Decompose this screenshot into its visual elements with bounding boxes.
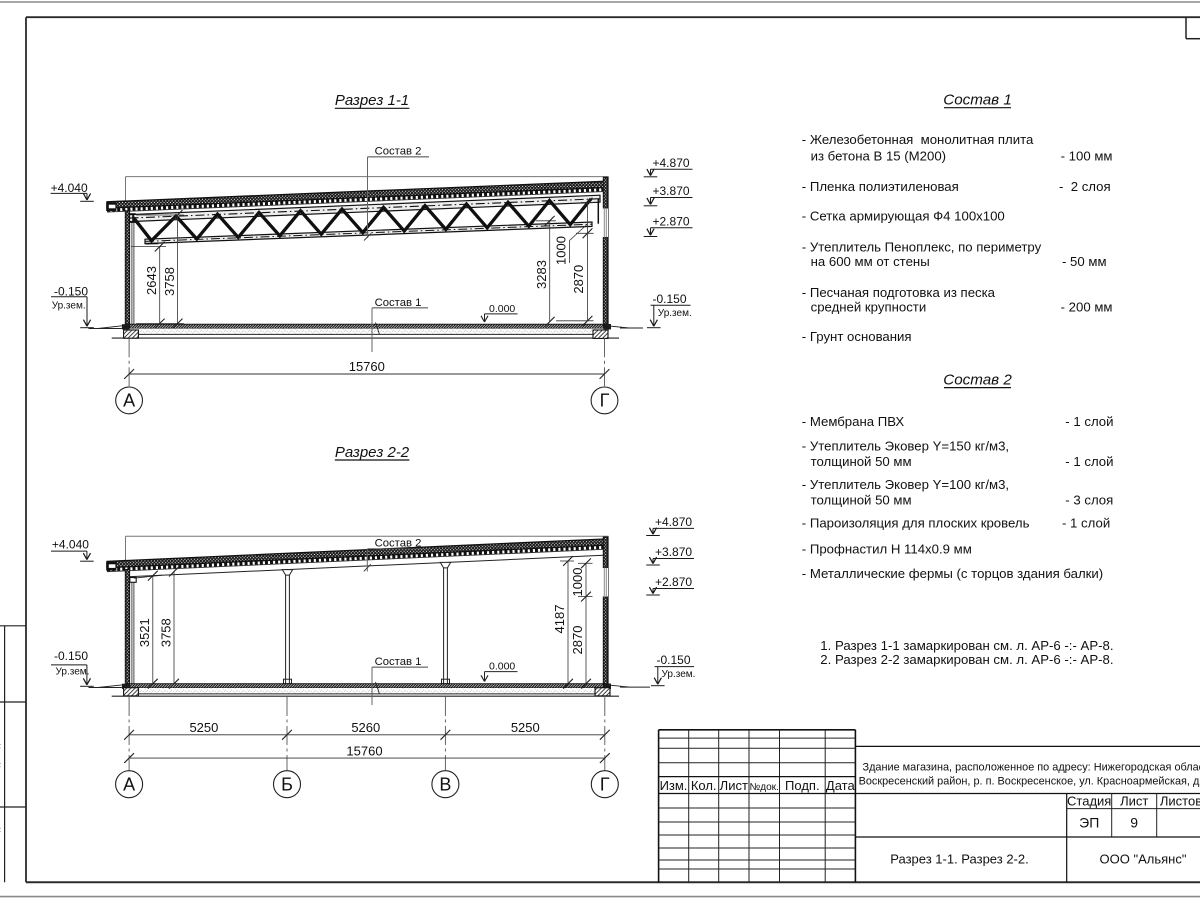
svg-text:Изм.: Изм. bbox=[660, 778, 688, 793]
svg-text:Состав 2: Состав 2 bbox=[943, 371, 1012, 388]
svg-text:15760: 15760 bbox=[346, 743, 382, 758]
svg-text:Воскресенский район, р. п. Вос: Воскресенский район, р. п. Воскресенское… bbox=[859, 775, 1200, 787]
svg-text:- Грунт основания: - Грунт основания bbox=[802, 329, 912, 344]
svg-text:0.000: 0.000 bbox=[489, 661, 515, 673]
svg-text:ЭП: ЭП bbox=[1079, 815, 1099, 831]
svg-text:средней крупности: средней крупности bbox=[811, 300, 927, 315]
svg-text:- 1 слой: - 1 слой bbox=[1062, 515, 1110, 530]
svg-text:Лист: Лист bbox=[720, 778, 748, 793]
svg-text:3758: 3758 bbox=[162, 267, 177, 296]
svg-text:А: А bbox=[123, 775, 135, 795]
svg-text:Стадия: Стадия bbox=[1067, 794, 1111, 809]
svg-text:Состав 1: Состав 1 bbox=[943, 92, 1012, 109]
svg-text:на 600 мм от стены: на 600 мм от стены bbox=[811, 254, 930, 269]
svg-text:- 200 мм: - 200 мм bbox=[1061, 300, 1113, 315]
svg-text:- Пленка полиэтиленовая: - Пленка полиэтиленовая bbox=[802, 179, 959, 194]
svg-text:Ур.зем.: Ур.зем. bbox=[662, 669, 696, 680]
svg-text:1000: 1000 bbox=[570, 568, 585, 597]
svg-text:- 1 слой: - 1 слой bbox=[1065, 414, 1113, 429]
svg-text:+3.870: +3.870 bbox=[653, 184, 690, 198]
svg-text:из бетона В 15 (М200): из бетона В 15 (М200) bbox=[811, 149, 946, 164]
svg-text:-0.150: -0.150 bbox=[54, 649, 88, 663]
svg-text:5250: 5250 bbox=[511, 720, 540, 735]
svg-text:№док.: №док. bbox=[750, 782, 779, 793]
svg-text:5250: 5250 bbox=[189, 720, 218, 735]
svg-text:Г: Г bbox=[600, 775, 610, 795]
svg-text:- Железобетонная монолитная п: - Железобетонная монолитная плита bbox=[802, 132, 1034, 147]
svg-text:толщиной 50 мм: толщиной 50 мм bbox=[811, 493, 912, 508]
svg-text:толщиной 50 мм: толщиной 50 мм bbox=[811, 454, 912, 469]
svg-text:- Мембрана ПВХ: - Мембрана ПВХ bbox=[802, 414, 905, 429]
svg-text:- Сетка армирующая Ф4 100х100: - Сетка армирующая Ф4 100х100 bbox=[802, 208, 1005, 223]
svg-text:- Пароизоляция для плоских кро: - Пароизоляция для плоских кровель bbox=[802, 515, 1030, 530]
svg-text:15760: 15760 bbox=[349, 359, 385, 374]
svg-text:- Утеплитель Эковер Y=150 кг/м: - Утеплитель Эковер Y=150 кг/м3, bbox=[802, 438, 1009, 453]
svg-text:В: В bbox=[439, 775, 451, 795]
svg-text:-0.150: -0.150 bbox=[653, 292, 687, 306]
svg-text:- 1 слой: - 1 слой bbox=[1065, 454, 1113, 469]
svg-text:2643: 2643 bbox=[144, 266, 159, 295]
svg-text:Ур.зем.: Ур.зем. bbox=[658, 308, 692, 319]
svg-text:Разрез 2-2: Разрез 2-2 bbox=[335, 444, 410, 461]
svg-text:- 100 мм: - 100 мм bbox=[1061, 149, 1113, 164]
svg-text:Лист: Лист bbox=[1120, 794, 1148, 809]
svg-text:Состав 1: Состав 1 bbox=[375, 297, 422, 309]
svg-text:3283: 3283 bbox=[534, 260, 549, 289]
svg-text:Разрез 1-1: Разрез 1-1 bbox=[335, 92, 409, 109]
svg-text:+4.040: +4.040 bbox=[52, 537, 89, 551]
svg-text:Инв. № подл.: Инв. № подл. bbox=[0, 821, 1, 868]
svg-text:9: 9 bbox=[1130, 815, 1138, 831]
svg-text:Состав 1: Состав 1 bbox=[375, 656, 422, 668]
svg-text:Ур.зем.: Ур.зем. bbox=[52, 300, 86, 311]
svg-text:3521: 3521 bbox=[137, 618, 152, 647]
svg-text:Подп. и дата: Подп. и дата bbox=[0, 732, 1, 777]
svg-text:Дата: Дата bbox=[826, 778, 856, 793]
svg-text:Листов: Листов bbox=[1160, 794, 1200, 809]
svg-text:- Песчаная подготовка из песка: - Песчаная подготовка из песка bbox=[802, 285, 996, 300]
svg-text:Состав 2: Состав 2 bbox=[375, 537, 422, 549]
svg-text:- 50 мм: - 50 мм bbox=[1062, 254, 1107, 269]
svg-text:Взаим. инв. №: Взаим. инв. № bbox=[0, 639, 1, 690]
svg-text:Ур.зем.: Ур.зем. bbox=[56, 666, 90, 677]
svg-text:+2.870: +2.870 bbox=[653, 215, 690, 229]
svg-text:- Утеплитель Пеноплекс, по пер: - Утеплитель Пеноплекс, по периметру bbox=[802, 239, 1042, 254]
svg-text:- Металлические фермы (с торцо: - Металлические фермы (с торцов здания б… bbox=[802, 566, 1103, 581]
svg-text:- Профнастил Н 114х0.9 мм: - Профнастил Н 114х0.9 мм bbox=[802, 542, 972, 557]
svg-text:1. Разрез 1-1 замаркирован см.: 1. Разрез 1-1 замаркирован см. л. АР-6 -… bbox=[820, 638, 1113, 653]
svg-text:ООО "Альянс": ООО "Альянс" bbox=[1100, 852, 1187, 867]
svg-text:2. Разрез 2-2 замаркирован см.: 2. Разрез 2-2 замаркирован см. л. АР-6 -… bbox=[820, 652, 1113, 667]
svg-text:- Утеплитель Эковер Y=100 кг/м: - Утеплитель Эковер Y=100 кг/м3, bbox=[802, 477, 1009, 492]
svg-text:+4.870: +4.870 bbox=[655, 515, 692, 529]
svg-text:+2.870: +2.870 bbox=[655, 575, 692, 589]
svg-text:5260: 5260 bbox=[351, 720, 380, 735]
svg-text:2870: 2870 bbox=[570, 626, 585, 655]
svg-text:Кол.: Кол. bbox=[691, 778, 717, 793]
svg-text:Б: Б bbox=[281, 775, 293, 795]
svg-text:- 3 слоя: - 3 слоя bbox=[1065, 493, 1113, 508]
svg-text:0.000: 0.000 bbox=[489, 303, 515, 315]
svg-text:Г: Г bbox=[600, 391, 610, 411]
svg-text:Подп.: Подп. bbox=[785, 778, 820, 793]
svg-text:Здание магазина, расположенное: Здание магазина, расположенное по адресу… bbox=[863, 762, 1200, 774]
svg-text:+3.870: +3.870 bbox=[655, 545, 692, 559]
svg-text:Состав 2: Состав 2 bbox=[375, 145, 422, 157]
svg-text:- 2 слоя: - 2 слоя bbox=[1059, 179, 1111, 194]
svg-text:Разрез 1-1. Разрез 2-2.: Разрез 1-1. Разрез 2-2. bbox=[890, 852, 1028, 867]
svg-text:-0.150: -0.150 bbox=[657, 653, 691, 667]
svg-text:3758: 3758 bbox=[158, 618, 173, 647]
svg-text:1000: 1000 bbox=[554, 236, 569, 265]
svg-text:-0.150: -0.150 bbox=[54, 284, 88, 298]
svg-text:4187: 4187 bbox=[552, 605, 567, 634]
svg-text:+4.870: +4.870 bbox=[653, 156, 690, 170]
svg-text:А: А bbox=[123, 391, 135, 411]
svg-text:2870: 2870 bbox=[571, 265, 586, 294]
